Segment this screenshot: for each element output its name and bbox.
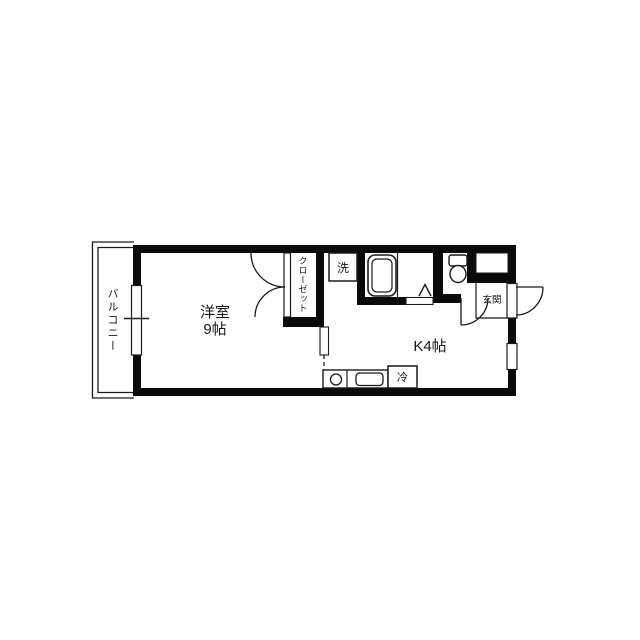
western-room-size: 9帖: [160, 321, 270, 338]
refrigerator-label: 冷: [388, 366, 417, 388]
washing-machine-label: 洗: [329, 253, 357, 281]
western-room-name: 洋室: [160, 304, 270, 321]
bathtub-icon: [368, 253, 398, 297]
western-room-label: 洋室 9帖: [160, 304, 270, 338]
bathroom-door-threshold: [406, 298, 433, 305]
bathroom-folding-door-mark: [419, 285, 431, 297]
kitchen-counter: [323, 370, 388, 388]
balcony-window: [124, 286, 149, 356]
balcony-label: バルコニー: [101, 266, 123, 374]
kitchen-label: K4帖: [385, 336, 475, 354]
entrance-door-icon: [507, 284, 543, 319]
floorplan-drawing: [0, 0, 640, 640]
room-divider-door: [320, 327, 329, 355]
toilet-icon: [449, 255, 467, 283]
entrance-label: 玄関: [477, 292, 507, 305]
shoe-storage-cabinet: [476, 253, 508, 273]
floorplan-canvas: バルコニー 洋室 9帖 クローゼット 洗 K4帖 玄関 冷: [0, 0, 640, 640]
closet-front-panel: [284, 253, 291, 317]
kitchen-side-window: [507, 344, 517, 370]
closet-label: クローゼット: [295, 253, 311, 315]
